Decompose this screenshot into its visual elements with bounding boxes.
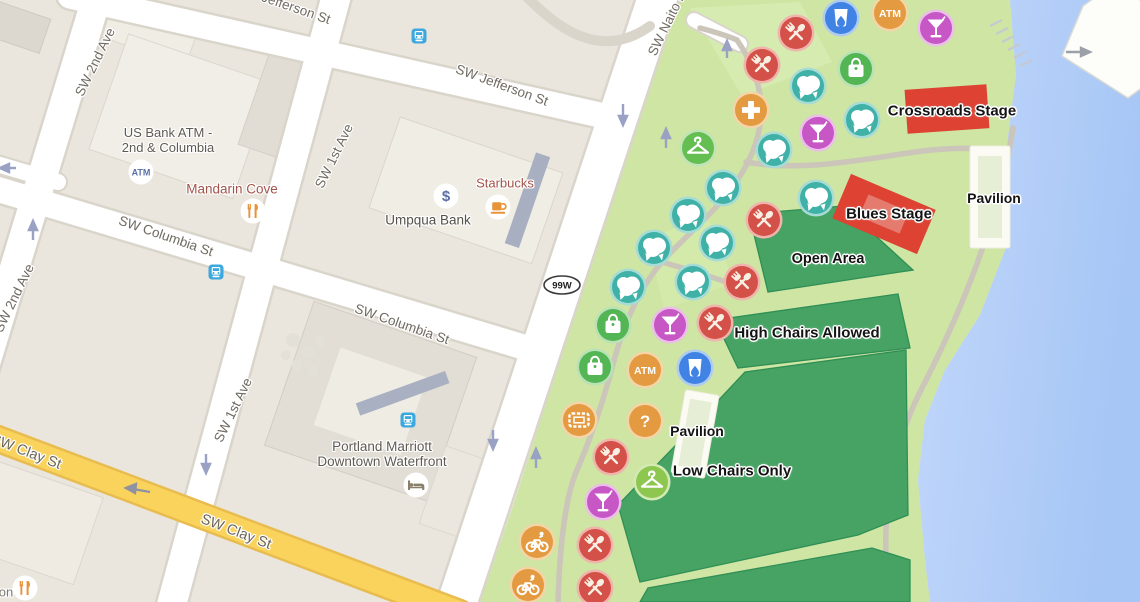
- svg-text:ATM: ATM: [132, 168, 151, 178]
- food-icon[interactable]: [778, 15, 815, 52]
- label-low-chairs: Low Chairs Only: [673, 463, 791, 480]
- atm-icon[interactable]: ATM: [627, 352, 664, 389]
- water-station-icon[interactable]: [677, 350, 714, 387]
- restroom-icon[interactable]: [798, 180, 835, 217]
- restroom-icon[interactable]: [756, 132, 793, 169]
- hotel-icon[interactable]: [404, 473, 429, 498]
- svg-text:$: $: [442, 188, 451, 205]
- food-icon[interactable]: [577, 527, 614, 564]
- poi-label-us-bank-atm: US Bank ATM - 2nd & Columbia: [122, 125, 215, 155]
- merchandise-icon[interactable]: [577, 349, 614, 386]
- bank-dollar-icon[interactable]: $: [434, 184, 459, 209]
- label-blues-stage: Blues Stage: [846, 206, 932, 223]
- label-high-chairs: High Chairs Allowed: [734, 325, 879, 342]
- food-icon[interactable]: [593, 439, 630, 476]
- restroom-icon[interactable]: [844, 102, 881, 139]
- first-aid-icon[interactable]: [733, 92, 770, 129]
- food-icon[interactable]: [724, 264, 761, 301]
- svg-text:ATM: ATM: [634, 365, 656, 377]
- restroom-icon[interactable]: [790, 68, 827, 105]
- poi-label-starbucks: Starbucks: [476, 176, 534, 191]
- drinks-icon[interactable]: [585, 484, 622, 521]
- drinks-icon[interactable]: [918, 10, 955, 47]
- bike-parking-icon[interactable]: [519, 524, 556, 561]
- poi-label-edge-cutoff: on: [0, 585, 13, 600]
- map-canvas[interactable]: 99W ATM $ ATM: [0, 0, 1140, 602]
- label-pavilion-center: Pavilion: [670, 423, 724, 439]
- bike-parking-icon[interactable]: [510, 567, 547, 602]
- coat-check-icon[interactable]: [680, 130, 717, 167]
- label-pavilion-ne: Pavilion: [967, 190, 1021, 206]
- restaurant-icon[interactable]: [13, 576, 38, 601]
- food-icon[interactable]: [744, 47, 781, 84]
- restroom-icon[interactable]: [699, 225, 736, 262]
- poi-label-umpqua-bank: Umpqua Bank: [385, 213, 471, 228]
- coffee-icon[interactable]: [486, 195, 511, 220]
- atm-badge-icon[interactable]: ATM: [129, 160, 154, 185]
- information-icon[interactable]: ?: [627, 403, 664, 440]
- restroom-icon[interactable]: [610, 269, 647, 306]
- restroom-icon[interactable]: [636, 230, 673, 267]
- label-open-area: Open Area: [792, 251, 865, 267]
- poi-label-mandarin-cove: Mandarin Cove: [186, 182, 278, 197]
- food-icon[interactable]: [746, 202, 783, 239]
- restroom-icon[interactable]: [675, 264, 712, 301]
- restaurant-icon[interactable]: [241, 199, 266, 224]
- bus-stop-icon[interactable]: [209, 265, 224, 280]
- highway-99w-shield: 99W: [544, 276, 580, 294]
- poi-label-marriott: Portland Marriott Downtown Waterfront: [317, 439, 446, 469]
- restroom-icon[interactable]: [670, 197, 707, 234]
- label-crossroads-stage: Crossroads Stage: [888, 103, 1016, 120]
- water-station-icon[interactable]: [823, 0, 860, 37]
- merchandise-icon[interactable]: [595, 307, 632, 344]
- restroom-icon[interactable]: [705, 170, 742, 207]
- svg-text:ATM: ATM: [879, 8, 901, 20]
- svg-text:99W: 99W: [552, 281, 572, 292]
- drinks-icon[interactable]: [652, 307, 689, 344]
- bus-stop-icon[interactable]: [412, 29, 427, 44]
- merchandise-icon[interactable]: [838, 51, 875, 88]
- coat-check-icon[interactable]: [634, 464, 671, 501]
- tickets-icon[interactable]: [561, 402, 598, 439]
- bus-stop-icon[interactable]: [401, 413, 416, 428]
- svg-text:?: ?: [640, 412, 650, 431]
- food-icon[interactable]: [697, 305, 734, 342]
- drinks-icon[interactable]: [800, 115, 837, 152]
